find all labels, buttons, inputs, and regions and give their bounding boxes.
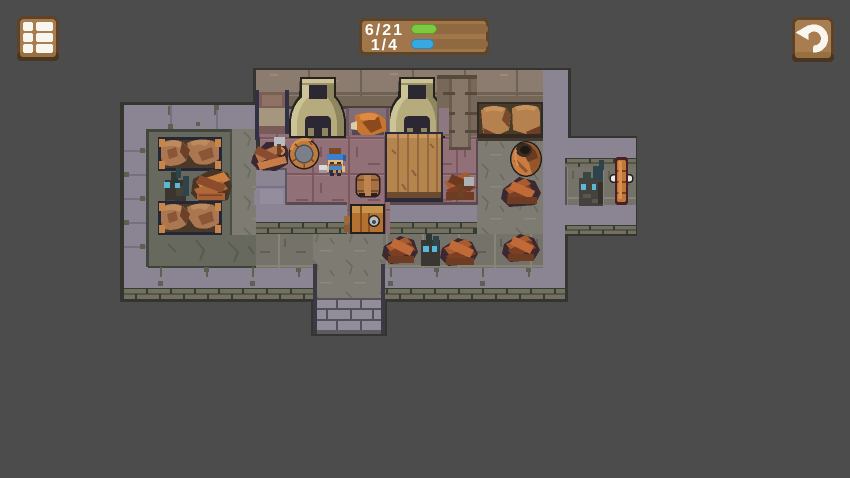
svg-text:1/4: 1/4	[371, 37, 399, 54]
